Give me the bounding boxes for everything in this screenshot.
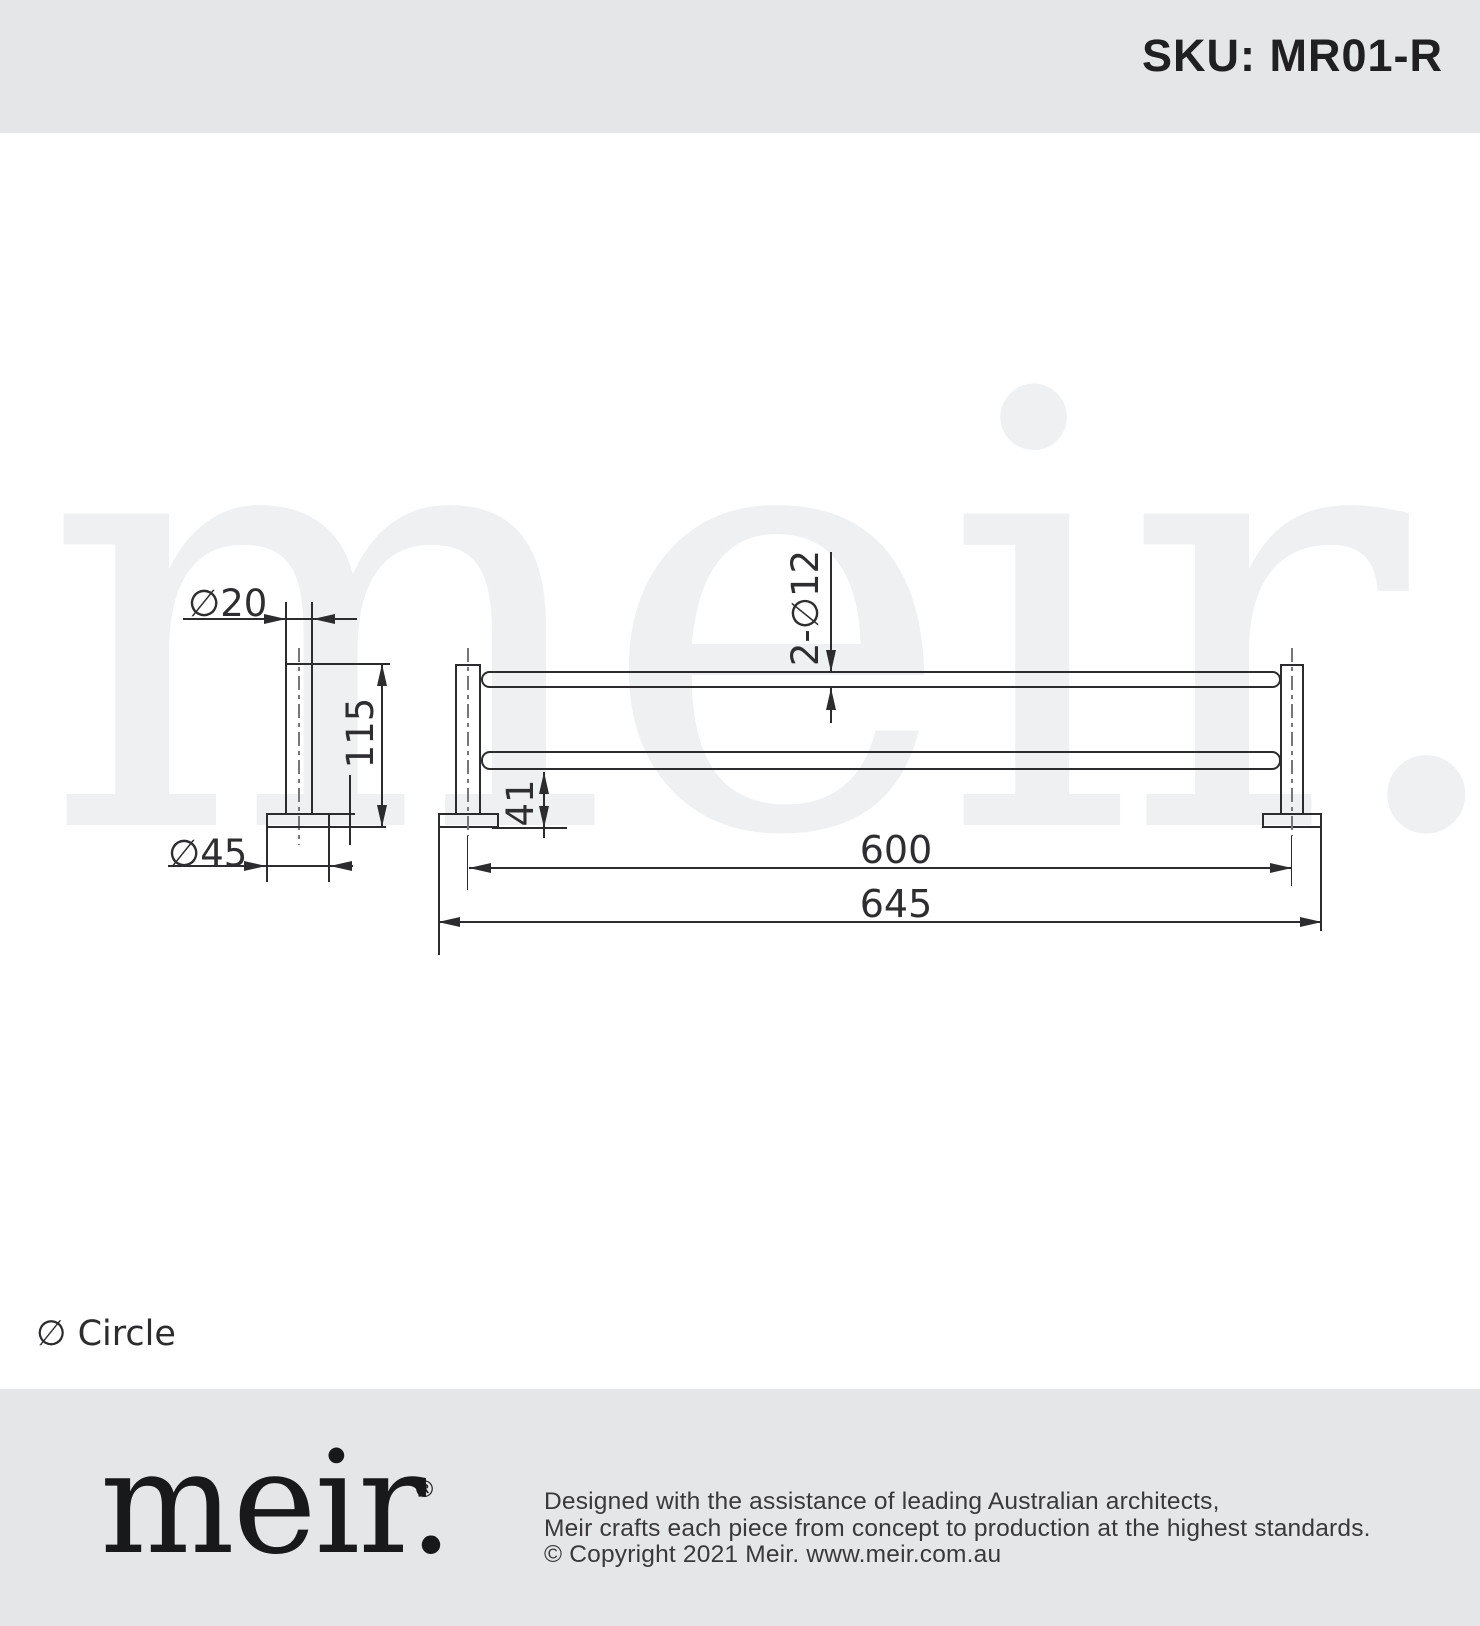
dim-post-height-arrow-bottom	[377, 805, 387, 827]
side-post-top-edge	[285, 663, 390, 665]
footer-line-3: © Copyright 2021 Meir. www.meir.com.au	[544, 1542, 1371, 1569]
side-rail-position-line	[349, 775, 351, 845]
side-wall-extension-line	[266, 826, 386, 828]
dim-base-diameter-arrow-right	[330, 861, 352, 871]
front-right-post-right-edge	[1302, 664, 1304, 813]
side-base-right-edge	[328, 813, 330, 882]
front-left-post-right-edge	[479, 664, 481, 813]
dim-post-height-label: 115	[341, 693, 381, 773]
registered-trademark-icon: ®	[413, 1477, 436, 1503]
dim-base-diameter-label: ∅45	[168, 832, 247, 875]
dim-wall-offset-label: 41	[501, 773, 541, 833]
dim-rail-diameter-arrow-up	[826, 688, 836, 710]
front-left-centerline	[467, 648, 469, 836]
legend-shape-note: ∅ Circle	[36, 1314, 176, 1354]
side-centerline	[298, 648, 300, 845]
dim-rail-length-arrow-right	[1270, 863, 1292, 873]
dim-rail-length-label: 600	[821, 828, 971, 872]
sku-title: SKU: MR01-R	[1142, 30, 1443, 82]
dim-rail-length-arrow-left	[469, 863, 491, 873]
dim-rail-diameter-arrow-down	[826, 650, 836, 672]
side-base-left-edge	[266, 813, 268, 882]
dim-post-diameter-arrow-right	[313, 614, 335, 624]
side-flange-top-edge	[266, 813, 355, 815]
footer-line-1: Designed with the assistance of leading …	[544, 1489, 1371, 1516]
front-left-post-left-edge	[455, 664, 457, 813]
dim-post-diameter-label: ∅20	[188, 582, 267, 625]
side-post-left-edge	[285, 602, 287, 813]
dim-post-height-arrow-top	[377, 664, 387, 686]
front-right-post-left-edge	[1280, 664, 1282, 813]
dim-overall-length-arrow-right	[1300, 917, 1322, 927]
side-post-right-edge	[311, 602, 313, 813]
footer-text: Designed with the assistance of leading …	[544, 1489, 1371, 1569]
bottom-rail	[481, 751, 1281, 770]
dim-overall-length-label: 645	[821, 882, 971, 926]
meir-logo: meir.	[100, 1433, 452, 1575]
front-left-extension-line	[438, 828, 440, 955]
dim-rail-diameter-label: 2-∅12	[786, 548, 826, 668]
top-rail	[481, 671, 1281, 688]
footer-line-2: Meir crafts each piece from concept to p…	[544, 1516, 1371, 1543]
front-right-center-extension	[1291, 836, 1292, 886]
dim-overall-length-arrow-left	[438, 917, 460, 927]
front-right-extension-line	[1320, 828, 1322, 931]
front-right-centerline	[1291, 648, 1293, 836]
